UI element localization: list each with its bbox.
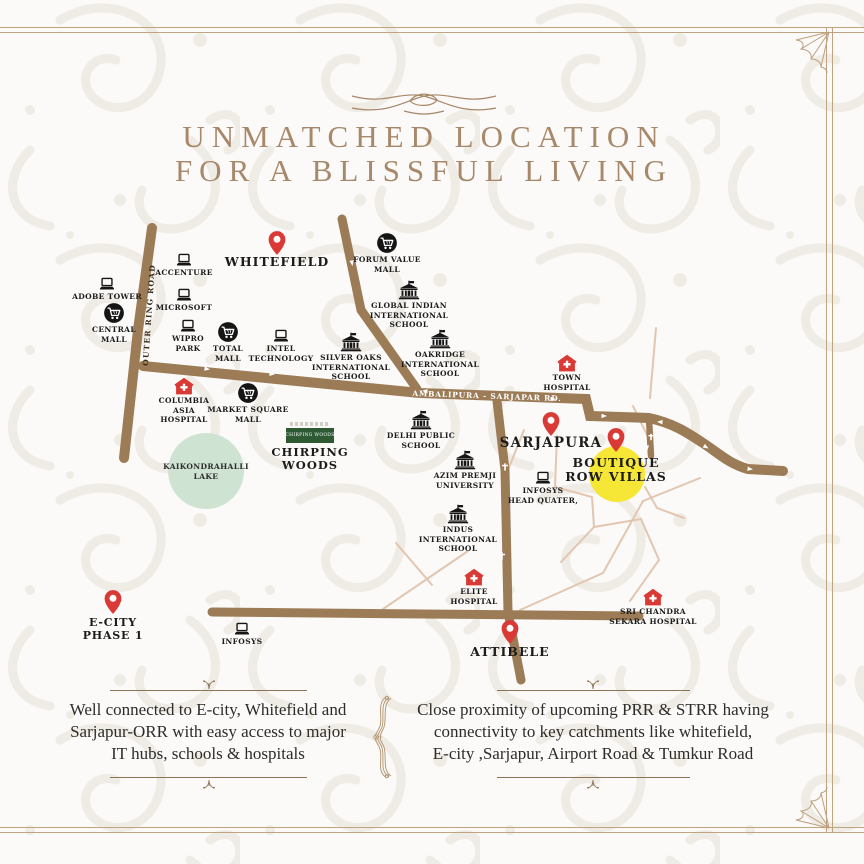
frame-line-top-outer (0, 27, 864, 28)
mall-icon (377, 233, 398, 254)
frame-line-bottom-outer (0, 832, 864, 833)
landmark-label: INFOSYS (222, 637, 263, 647)
footer-left-note: Well connected to E-city, Whitefield and… (60, 699, 356, 765)
landmark-label: TOWNHOSPITAL (543, 373, 590, 392)
hospital-icon (465, 569, 484, 586)
school-icon (410, 411, 432, 430)
landmark-label: ACCENTURE (155, 268, 213, 278)
landmark-label: INTELTECHNOLOGY (249, 344, 314, 363)
pin-icon (501, 619, 520, 645)
landmark-label: OAKRIDGEINTERNATIONALSCHOOL (401, 350, 479, 379)
fleur-ornament (584, 680, 602, 690)
footer-right-note: Close proximity of upcoming PRR & STRR h… (417, 699, 769, 765)
chirping-woods-logo: CHIRPING WOODS (286, 428, 334, 443)
frame-line-right-inner (826, 27, 827, 833)
corner-ornament-bottom-right (788, 786, 830, 830)
hospital-icon (558, 355, 577, 372)
landmark-label: AZIM PREMJIUNIVERSITY (434, 471, 497, 490)
landmark-label: INFOSYSHEAD QUATER, (508, 486, 578, 505)
landmark-label: CENTRALMALL (92, 325, 136, 344)
footer-right-line1: Close proximity of upcoming PRR & STRR h… (417, 699, 769, 721)
landmark-label: TOTALMALL (213, 344, 243, 363)
pin-icon (268, 230, 287, 256)
landmark-label: COLUMBIAASIAHOSPITAL (159, 396, 210, 425)
mall-icon (238, 383, 259, 404)
landmark-label: CHIRPINGWOODS (271, 446, 348, 472)
divider-line (110, 690, 307, 691)
laptop-icon (176, 289, 192, 302)
frame-line-right-outer (832, 27, 833, 833)
landmark-label: WIPROPARK (172, 334, 204, 353)
landmark-label: GLOBAL INDIANINTERNATIONALSCHOOL (370, 301, 448, 330)
flourish-ornament (344, 84, 504, 118)
pin-icon (607, 427, 626, 453)
school-icon (340, 333, 362, 352)
location-map-poster: UNMATCHED LOCATION FOR A BLISSFUL LIVING (0, 0, 864, 864)
laptop-icon (180, 320, 196, 333)
pin-icon (542, 411, 561, 437)
mall-icon (218, 322, 239, 343)
divider-line (497, 777, 690, 778)
fleur-ornament (200, 680, 218, 690)
landmark-label: INDUSINTERNATIONALSCHOOL (419, 525, 497, 554)
landmark-label: SRI CHANDRASEKARA HOSPITAL (609, 607, 697, 626)
hospital-icon (175, 378, 194, 395)
footer-left-line1: Well connected to E-city, Whitefield and (60, 699, 356, 721)
laptop-icon (273, 330, 289, 343)
page-title-line1: UNMATCHED LOCATION (0, 120, 848, 154)
landmark-label: SARJAPURA (500, 436, 603, 451)
landmark-label: ATTIBELE (470, 645, 549, 659)
pin-icon (104, 589, 123, 615)
landmark-label: E-CITYPHASE 1 (83, 617, 144, 642)
page-title-line2: FOR A BLISSFUL LIVING (0, 154, 848, 188)
laptop-icon (99, 278, 115, 291)
landmark-label: KAIKONDRAHALLILAKE (163, 462, 249, 481)
footer-divider-ornament (368, 694, 398, 780)
footer-left-line3: IT hubs, schools & hospitals (60, 743, 356, 765)
hospital-icon (644, 589, 663, 606)
landmark-label: ELITEHOSPITAL (450, 587, 497, 606)
school-icon (398, 281, 420, 300)
school-icon (454, 451, 476, 470)
frame-line-bottom-inner (0, 827, 864, 828)
landmark-label: MICROSOFT (156, 303, 213, 313)
page-title: UNMATCHED LOCATION FOR A BLISSFUL LIVING (0, 120, 848, 188)
footer-right-line3: E-city ,Sarjapur, Airport Road & Tumkur … (417, 743, 769, 765)
landmark-label: DELHI PUBLICSCHOOL (387, 431, 455, 450)
landmark-label: BOUTIQUEROW VILLAS (565, 456, 667, 484)
landmark-label: FORUM VALUEMALL (353, 255, 421, 274)
footer-left-line2: Sarjapur-ORR with easy access to major (60, 721, 356, 743)
laptop-icon (535, 472, 551, 485)
mall-icon (104, 303, 125, 324)
laptop-icon (234, 623, 250, 636)
school-icon (429, 330, 451, 349)
landmark-label: MARKET SQUAREMALL (207, 405, 288, 424)
divider-line (497, 690, 690, 691)
divider-line (110, 777, 307, 778)
landmark-label: ADOBE TOWER (72, 292, 142, 302)
fleur-ornament (200, 779, 218, 789)
footer-right-line2: connectivity to key catchments like whit… (417, 721, 769, 743)
landmark-label: WHITEFIELD (225, 255, 329, 269)
school-icon (447, 505, 469, 524)
frame-line-top-inner (0, 32, 864, 33)
laptop-icon (176, 254, 192, 267)
logo-microtext (290, 422, 330, 426)
landmark-label: SILVER OAKSINTERNATIONALSCHOOL (312, 353, 390, 382)
fleur-ornament (584, 779, 602, 789)
corner-ornament-top-right (788, 30, 830, 74)
